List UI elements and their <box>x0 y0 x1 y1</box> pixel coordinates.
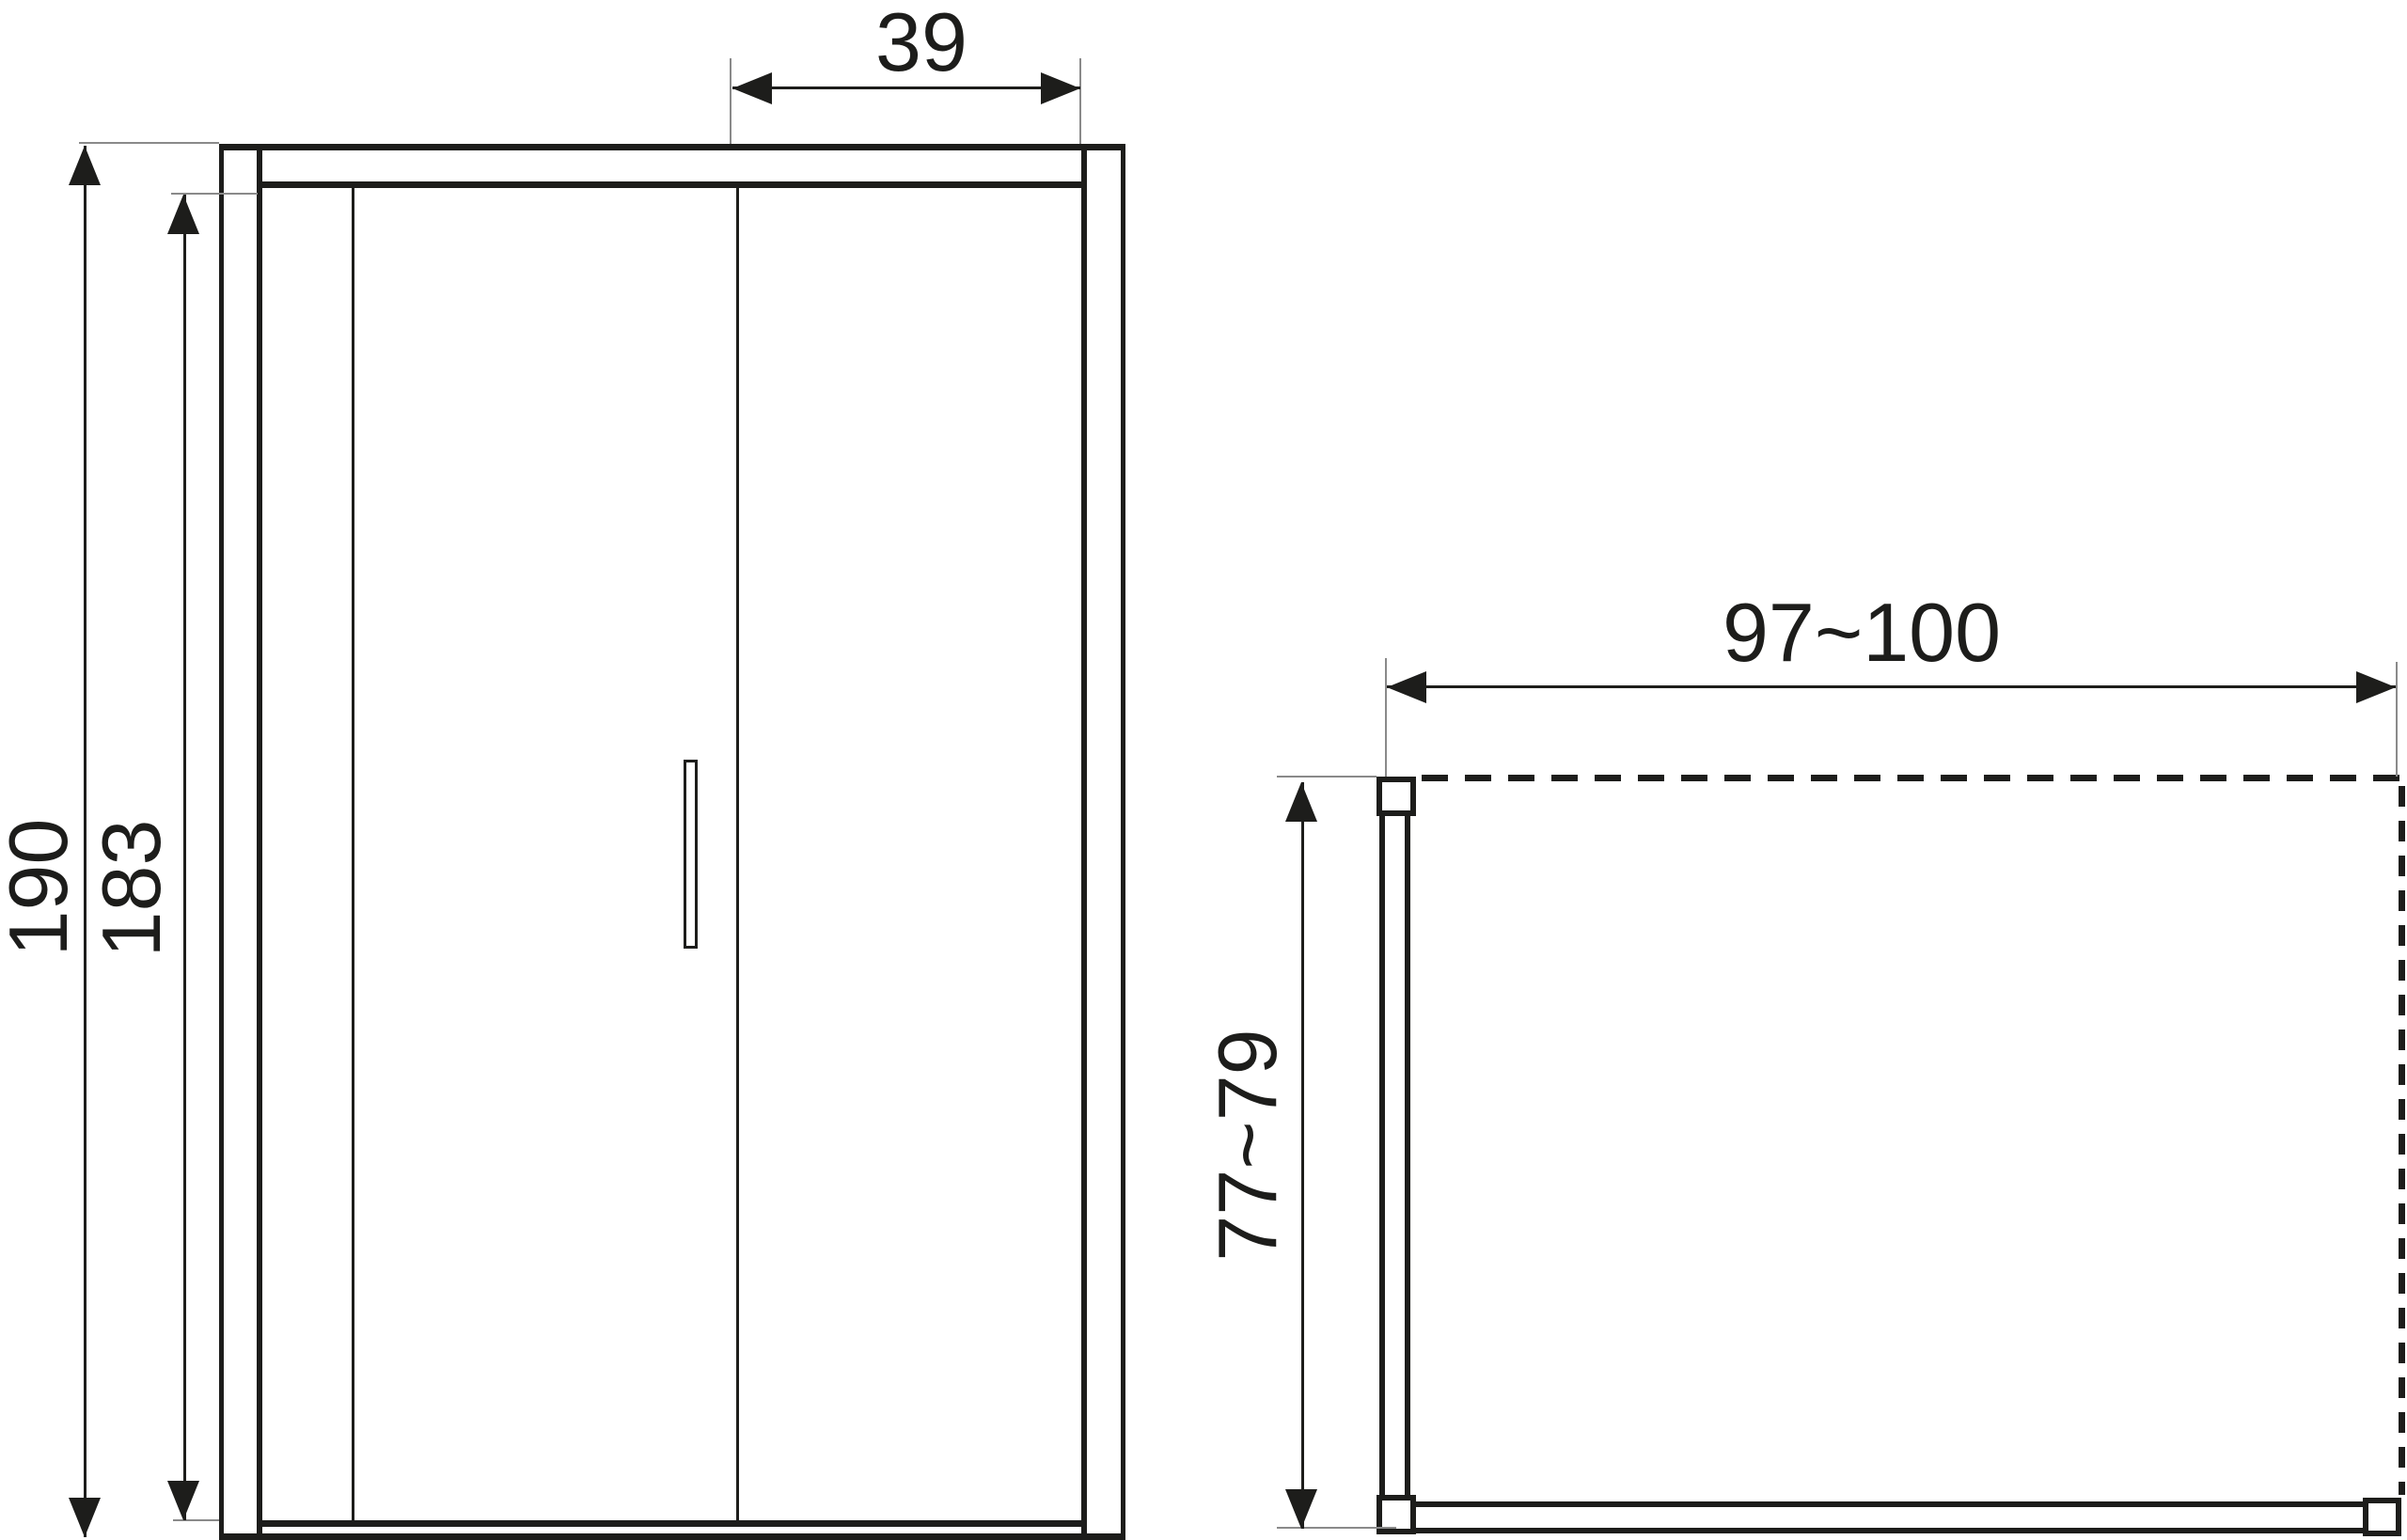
arrowhead-up-icon <box>69 146 101 185</box>
arrowhead-down-icon <box>167 1481 199 1520</box>
dimension-line <box>183 195 186 1520</box>
plan-front-panel-inner-line <box>1416 1501 2363 1507</box>
extension-line <box>1277 776 1377 778</box>
extension-line <box>2396 662 2398 777</box>
plan-side-panel-inner-line <box>1405 816 1410 1495</box>
front-bottom-rail-outer-line <box>219 1533 1125 1540</box>
sliding-door-edge-line <box>736 187 739 1522</box>
plan-profile-bottom-right <box>2363 1498 2401 1536</box>
arrowhead-left-icon <box>1387 671 1426 703</box>
dimension-line <box>1301 782 1304 1529</box>
plan-profile-top-left <box>1377 777 1416 816</box>
right-wall-profile-outer-line <box>1121 144 1125 1539</box>
front-top-rail-outer-line <box>219 144 1125 150</box>
front-top-rail-inner-line <box>257 181 1087 188</box>
fixed-panel-edge-line <box>352 187 354 1522</box>
arrowhead-right-icon <box>1041 72 1080 104</box>
dim-label-door-width: 39 <box>827 0 1015 85</box>
plan-open-side-top-dashed-line <box>1422 775 2405 781</box>
door-handle <box>684 760 698 949</box>
dim-label-plan-depth: 77~79 <box>1205 1004 1290 1286</box>
dimension-line <box>1387 685 2396 688</box>
plan-side-panel-outer-line <box>1379 816 1385 1495</box>
shower-door-dimension-drawing: 39 190 183 97~100 <box>0 0 2407 1540</box>
plan-front-panel-outer-line <box>1416 1528 2363 1533</box>
arrowhead-left-icon <box>732 72 772 104</box>
dim-label-glass-height: 183 <box>89 794 174 982</box>
arrowhead-right-icon <box>2356 671 2396 703</box>
arrowhead-down-icon <box>69 1498 101 1537</box>
extension-line <box>730 58 732 144</box>
extension-line <box>79 142 219 144</box>
arrowhead-up-icon <box>167 195 199 234</box>
dim-label-plan-width: 97~100 <box>1721 590 2003 675</box>
arrowhead-down-icon <box>1285 1489 1317 1529</box>
front-bottom-rail-inner-line <box>257 1520 1087 1527</box>
plan-open-side-right-dashed-line <box>2399 786 2405 1495</box>
dim-label-total-height: 190 <box>0 794 81 982</box>
left-wall-profile-outer-line <box>219 144 224 1539</box>
left-wall-profile-inner-line <box>257 144 262 1539</box>
arrowhead-up-icon <box>1285 782 1317 822</box>
right-wall-profile-inner-line <box>1081 144 1087 1539</box>
